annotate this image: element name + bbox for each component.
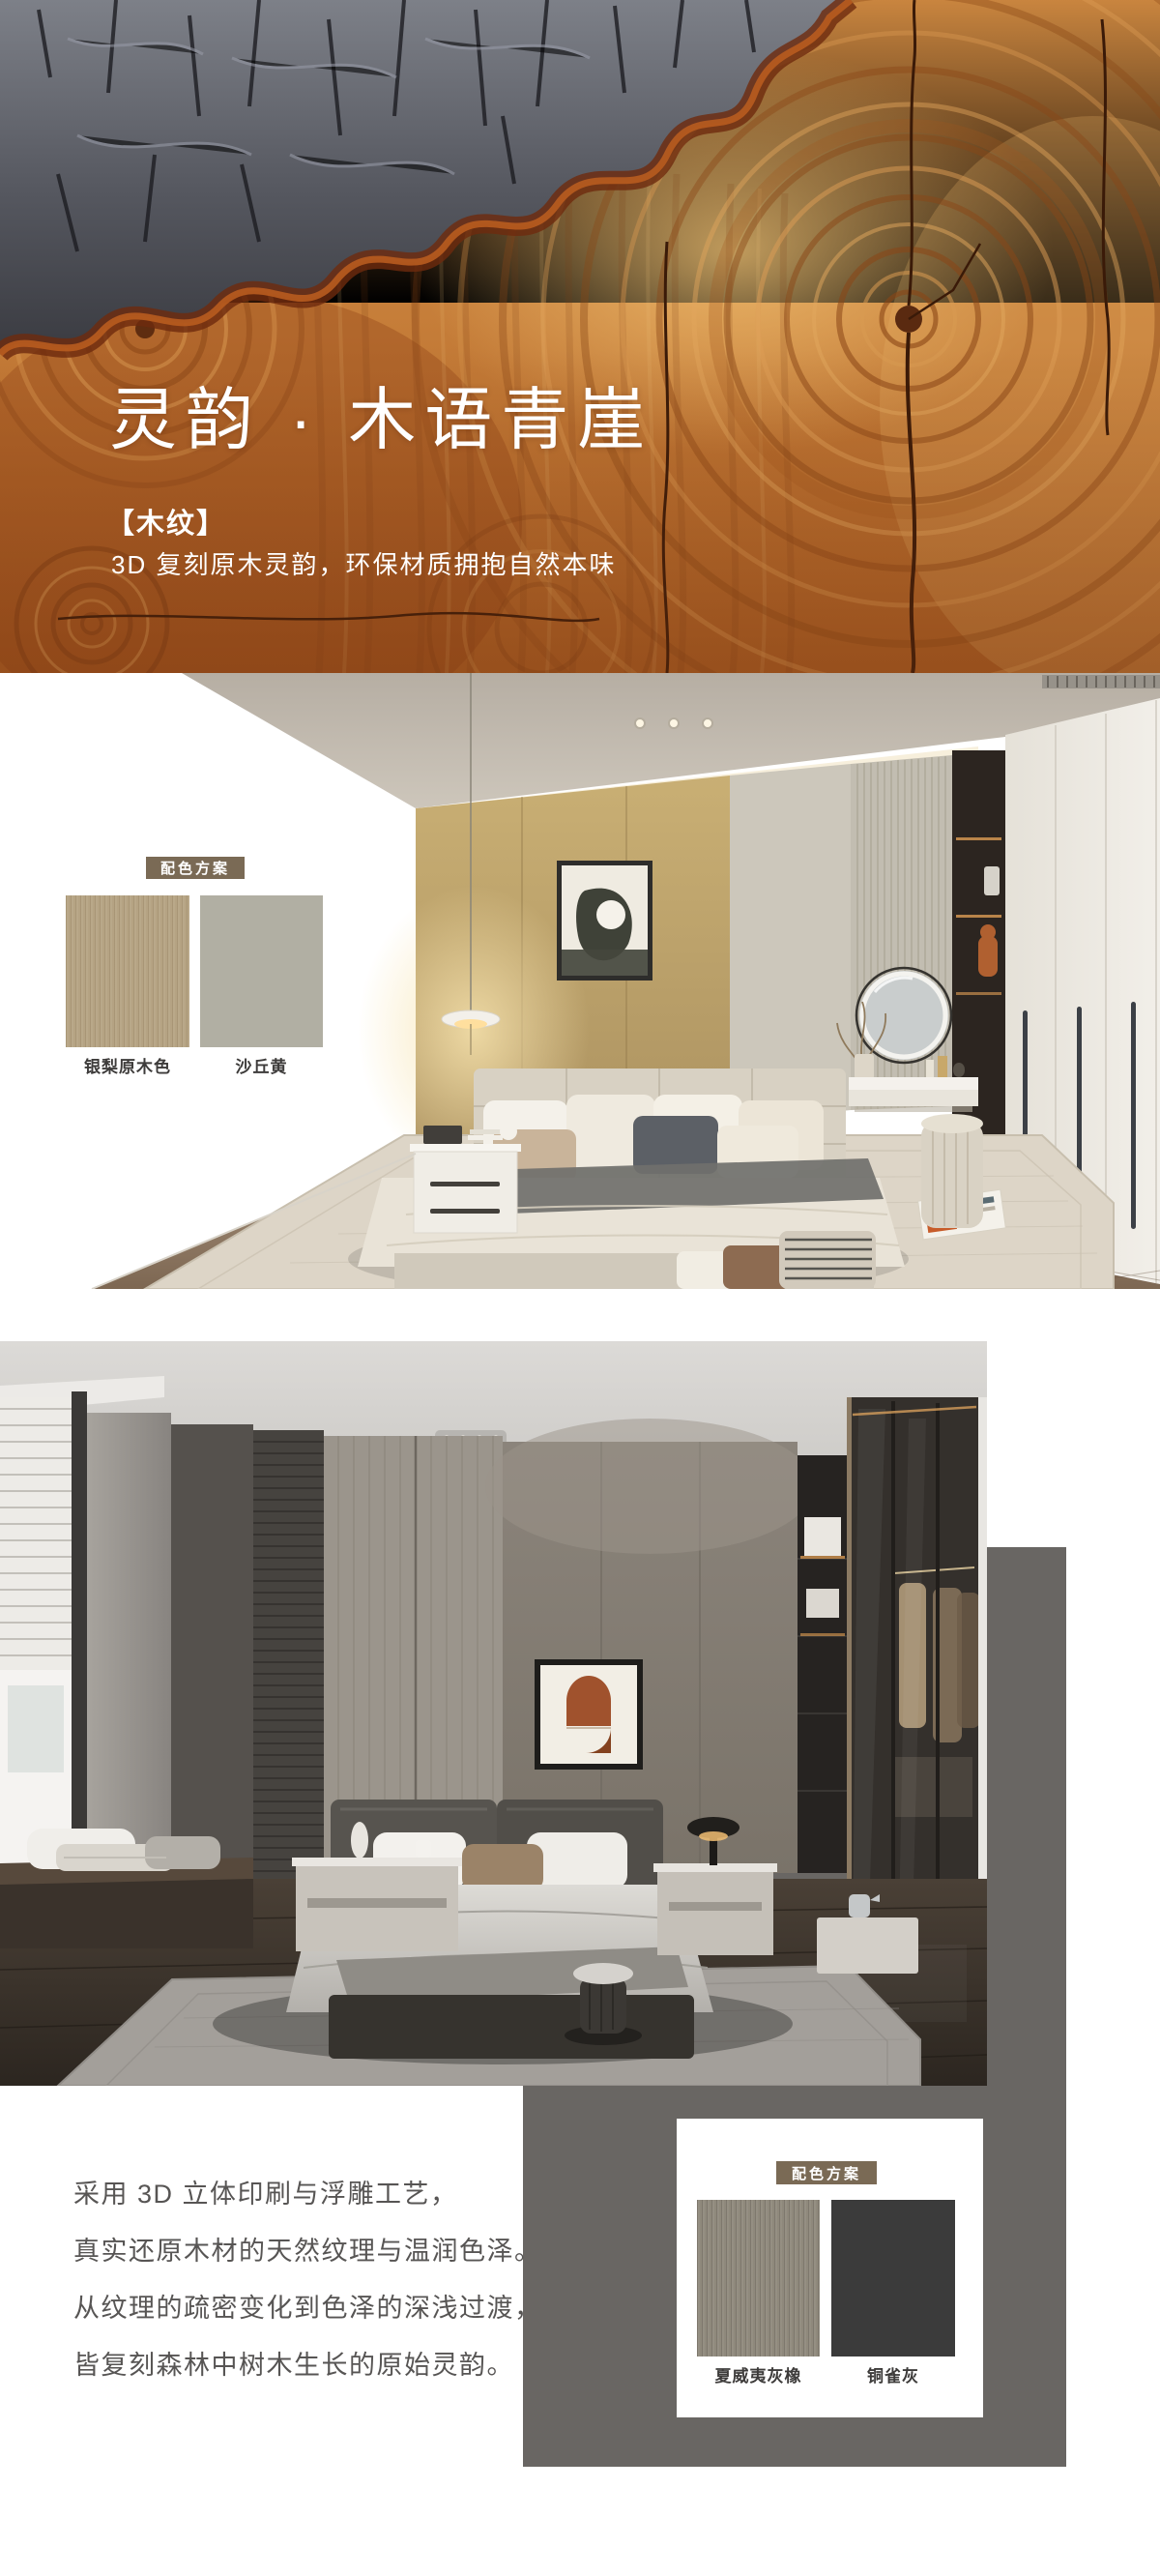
description-line-1: 采用 3D 立体印刷与浮雕工艺， bbox=[73, 2173, 458, 2210]
window-blinds bbox=[0, 1391, 87, 1888]
ribbed-grille bbox=[253, 1430, 324, 1885]
swatch-label: 银梨原木色 bbox=[66, 1053, 189, 1077]
hero-subtitle: 3D 复刻原木灵韵，环保材质拥抱自然本味 bbox=[111, 545, 616, 581]
hero-title: 灵韵 · 木语青崖 bbox=[109, 383, 653, 457]
wall-artwork bbox=[557, 861, 652, 981]
color-scheme-badge-dark: 配色方案 bbox=[776, 2161, 877, 2184]
side-wall bbox=[87, 1413, 171, 1888]
shelf-niche bbox=[797, 1455, 849, 1873]
description-line-3: 从纹理的疏密变化到色泽的深浅过渡， bbox=[73, 2287, 542, 2325]
swatch-silver-pear: 银梨原木色 bbox=[66, 895, 189, 1077]
glass-wardrobe bbox=[847, 1397, 987, 1945]
hero-wood-banner: 灵韵 · 木语青崖 【木纹】 3D 复刻原木灵韵，环保材质拥抱自然本味 bbox=[0, 0, 1160, 673]
swatch-bronze-gray: 铜雀灰 bbox=[831, 2200, 955, 2386]
description-line-4: 皆复刻森林中树木生长的原始灵韵。 bbox=[73, 2344, 514, 2382]
ac-vent bbox=[1042, 675, 1160, 688]
swatch-dune-yellow: 沙丘黄 bbox=[200, 895, 323, 1077]
description-line-2: 真实还原木材的天然纹理与温润色泽。 bbox=[73, 2230, 542, 2268]
poster-page: 灵韵 · 木语青崖 【木纹】 3D 复刻原木灵韵，环保材质拥抱自然本味 bbox=[0, 0, 1160, 2576]
dark-panel bbox=[171, 1424, 253, 1887]
wall-artwork bbox=[535, 1659, 643, 1770]
vanity-stool bbox=[921, 1114, 983, 1228]
swatch-label: 夏威夷灰橡 bbox=[697, 2362, 820, 2386]
swatch-hawaii-gray-oak: 夏威夷灰橡 bbox=[697, 2200, 820, 2386]
hero-tag: 【木纹】 bbox=[106, 501, 226, 542]
color-scheme-badge-light: 配色方案 bbox=[146, 857, 245, 879]
window-bench bbox=[0, 1829, 253, 1948]
bedroom-photo-dark bbox=[0, 1341, 987, 2086]
swatch-label: 铜雀灰 bbox=[831, 2362, 955, 2386]
swatch-label: 沙丘黄 bbox=[200, 1053, 323, 1077]
